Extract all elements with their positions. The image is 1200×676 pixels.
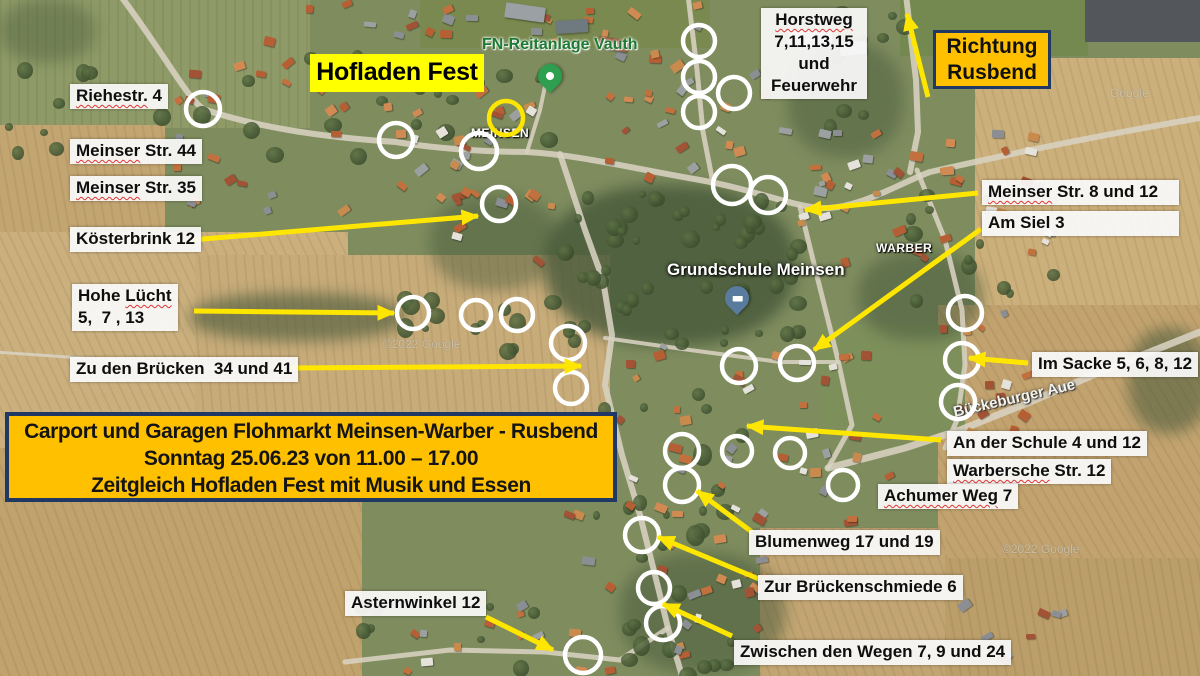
house [605,157,614,165]
house [632,374,640,382]
house [720,101,732,112]
street-label-zur-brueckenschmiede: Zur Brückenschmiede 6 [758,575,963,600]
house [810,164,821,170]
street-label-koesterbrink-12: Kösterbrink 12 [70,227,201,252]
tree [743,214,762,230]
house [516,630,525,639]
street-label-line: Feuerwehr [767,75,861,97]
label-text: Str. 12 [1050,461,1106,480]
meinsen-place: MEINSEN [471,126,529,140]
label-text: Str. 8 und 12 [1052,182,1158,201]
house [509,108,524,122]
tree [1047,269,1060,281]
house [674,405,681,412]
house [675,141,689,154]
sale-location-circle [625,518,659,552]
tree [888,12,897,21]
house [547,203,555,211]
house [772,351,785,361]
tree [266,147,284,162]
house [621,127,630,136]
tree [627,619,641,631]
tree [780,326,795,342]
tree [446,95,458,105]
tree [776,201,787,212]
house [384,102,393,111]
house [667,540,677,550]
street-label-line: Blumenweg 17 und 19 [755,531,934,553]
house [821,375,830,385]
street-label-achumer-weg-7: Achumer Weg 7 [878,484,1018,509]
street-label-im-sacke: Im Sacke 5, 6, 8, 12 [1032,352,1198,377]
label-text: Asternwinkel 12 [351,593,480,612]
tree [640,403,648,412]
sale-location-circle [683,96,715,128]
misspell-squiggle-text: Lücht [125,286,171,305]
tree [858,110,870,120]
event-extra-line: Zeitgleich Hofladen Fest mit Musik und E… [9,472,613,499]
house [643,172,655,184]
house [678,453,692,464]
label-text: Str. 44 [140,141,196,160]
house [653,350,666,361]
house [847,159,861,170]
street-label-line: Hohe Lücht [78,285,172,307]
house [852,452,862,462]
tree [17,62,33,79]
label-text: Blumenweg 17 und 19 [755,532,934,551]
tree [636,553,648,563]
house [799,467,807,475]
fn-reitanlage-vauth: FN-Reitanlage Vauth [482,36,638,54]
house [440,29,452,37]
tree [563,326,575,338]
label-text: und [798,54,829,73]
map-pin-dot [544,70,555,81]
label-text: Am Siel 3 [988,213,1065,232]
tree [919,189,935,202]
house [713,534,726,543]
misspell-squiggle-text: Meinser [988,182,1052,201]
label-text: Kösterbrink 12 [76,229,195,248]
street-label-line: Im Sacke 5, 6, 8, 12 [1038,353,1192,375]
street-label-line: Achumer Weg 7 [884,485,1012,507]
house [940,325,946,333]
tree [755,330,762,336]
house [687,161,700,173]
road [345,628,668,662]
tree [513,660,529,676]
tree [925,206,934,214]
street-label-meinser-str-44: Meinser Str. 44 [70,139,202,164]
house [798,219,806,227]
house [677,467,685,474]
house [1028,132,1040,142]
house [799,402,807,408]
house [809,468,820,477]
house [715,126,726,136]
street-label-line: Riehestr. 4 [76,85,162,107]
house [664,107,675,114]
tree [836,104,852,118]
house [909,151,923,162]
street-label-line: 5, 7 , 13 [78,307,172,329]
tree [789,296,807,311]
street-label-zwischen-den-wegen: Zwischen den Wegen 7, 9 und 24 [734,640,1011,665]
house [742,384,755,395]
tree [242,75,254,87]
house [459,151,471,160]
tree [997,281,1012,295]
house [173,164,181,171]
house [484,617,496,628]
tree [601,265,611,276]
tree [544,295,561,310]
tree [586,270,602,286]
misspell-squiggle-text: Meinser [76,141,140,160]
misspell-squiggle-text: Riehestr. [76,86,148,105]
event-date-line: Sonntag 25.06.23 von 11.00 – 17.00 [9,445,613,472]
flea-market-map-flyer: FN-Reitanlage VauthMEINSENWARBERGrundsch… [0,0,1200,676]
house [680,415,692,426]
street-label-line: Zwischen den Wegen 7, 9 und 24 [740,641,1005,663]
house [405,20,418,30]
tree [411,119,422,130]
street-label-riehestr: Riehestr. 4 [70,84,168,109]
house [839,203,850,213]
house [237,180,248,187]
label-text: Zu den Brücken 34 und 41 [76,359,292,378]
map-field [1085,0,1200,42]
street-label-line: und [767,53,861,75]
label-text: Hohe [78,286,125,305]
tree [904,226,922,242]
house [341,0,353,9]
house [419,630,427,638]
house [337,204,351,217]
tree [693,444,712,466]
house [263,36,276,47]
house [324,104,338,117]
arrow-meinser-8-12 [805,193,978,210]
watermark-2: Google [1110,86,1149,100]
tree [423,292,440,310]
tree [53,98,65,108]
farm-building [556,19,589,34]
tree [699,506,707,516]
street-label-line: Kösterbrink 12 [76,228,195,250]
tree [910,294,923,307]
house [726,443,737,455]
graduation-cap-icon [733,296,743,302]
house [628,474,638,482]
tree [243,122,260,139]
house [863,154,874,163]
house [420,657,432,666]
street-label-warbersche-str-12: Warbersche Str. 12 [947,459,1111,484]
street-label-line: Meinser Str. 35 [76,177,196,199]
house [604,581,616,593]
house [396,130,406,139]
watermark-1: ©2022 Google [383,337,461,351]
tree [681,230,700,248]
label-text: Zur Brückenschmiede 6 [764,577,957,596]
house [466,15,478,21]
map-field [820,325,965,433]
house [575,666,587,674]
misspell-squiggle-text: Warbersche [953,461,1050,480]
fn-reitanlage-pin [533,59,567,93]
tree [356,623,370,638]
house [1027,248,1036,255]
house [526,105,537,116]
house [411,135,419,144]
richtung-line: Richtung [936,34,1048,60]
street-label-line: Horstweg [767,9,861,31]
event-title-line: Carport und Garagen Flohmarkt Meinsen-Wa… [9,418,613,445]
house [844,182,853,190]
house [393,31,404,39]
tree [593,511,600,519]
house [516,600,528,612]
house [656,118,668,128]
house [569,629,582,638]
house [651,49,661,59]
tree [496,69,513,84]
street-label-line: Zur Brückenschmiede 6 [764,576,957,598]
street-label-line: Meinser Str. 8 und 12 [988,181,1173,203]
tree [701,404,712,414]
rusbend-line: Rusbend [936,60,1048,86]
label-text: Feuerwehr [771,76,857,95]
house [532,631,544,642]
sale-location-circle [379,123,413,157]
tree [976,239,985,249]
house [364,22,377,28]
tree [700,280,713,294]
house [670,59,685,74]
tree [402,297,420,315]
house [306,5,314,13]
house [396,180,408,191]
house [623,97,632,103]
tree [528,607,540,619]
grundschule-meinsen: Grundschule Meinsen [667,260,845,280]
house [582,557,596,566]
tree [697,660,712,674]
house [991,130,1004,138]
tree [622,304,632,315]
tree [671,585,687,603]
street-label-line: 7,11,13,15 [767,31,861,53]
street-label-am-siel-3: Am Siel 3 [982,211,1179,236]
tree [574,214,581,222]
tree [692,388,705,401]
street-label-meinser-str-35: Meinser Str. 35 [70,176,202,201]
tree [621,653,638,667]
sale-location-circle [828,470,858,500]
map-forest [1128,328,1200,433]
tree [477,636,485,643]
house [885,471,896,481]
tree [499,343,517,360]
house [873,191,880,197]
house [985,381,994,390]
tree [675,337,690,351]
street-label-line: Asternwinkel 12 [351,592,480,614]
hofladen-fest-banner: Hofladen Fest [310,54,484,92]
tree [639,191,646,198]
house [223,174,237,187]
tree [422,325,429,331]
street-label-zu-den-bruecken: Zu den Brücken 34 und 41 [70,357,298,382]
house [861,351,872,360]
map-forest [0,0,95,62]
tree [486,603,494,611]
street-label-meinser-str-8-12: Meinser Str. 8 und 12 [982,180,1179,205]
tree [686,525,705,546]
house [942,167,955,176]
street-label-line: Warbersche Str. 12 [953,460,1105,482]
tree [721,325,729,334]
tree [193,106,211,125]
house [626,360,636,368]
house [403,666,412,675]
house [963,328,971,334]
house [330,131,340,138]
house [669,443,683,453]
tree [735,428,749,443]
house [436,192,447,203]
street-label-blumenweg: Blumenweg 17 und 19 [749,530,940,555]
street-label-line: Am Siel 3 [988,212,1173,234]
house [805,428,818,439]
tree [906,213,916,225]
event-info-box: Carport und Garagen Flohmarkt Meinsen-Wa… [5,412,617,502]
house [847,516,857,522]
tree [712,224,719,231]
house [586,7,594,13]
tree [498,303,510,316]
tree [350,148,367,165]
house [833,130,843,136]
tree [582,191,594,204]
house [818,212,832,222]
street-label-horstweg: Horstweg7,11,13,15undFeuerwehr [761,8,867,99]
label-text: 7 [998,486,1012,505]
tree [964,255,973,265]
misspell-squiggle-text: Horstweg [775,10,852,29]
tree [428,308,445,325]
house [848,431,861,441]
house [749,69,761,80]
house [813,186,827,197]
house [207,153,221,163]
label-text: 5, 7 , 13 [78,308,144,327]
tree [620,206,639,223]
tree [540,132,558,148]
map-forest [190,293,405,341]
label-text: 7,11,13,15 [774,32,853,51]
tree [49,142,64,156]
house [940,233,953,243]
satellite-map: FN-Reitanlage VauthMEINSENWARBERGrundsch… [0,0,1200,676]
sale-location-circle [683,61,715,93]
house [408,9,418,19]
street-label-line: Meinser Str. 44 [76,140,196,162]
house [267,191,277,199]
house [189,70,201,79]
house [414,163,429,177]
tree [509,313,526,333]
house [946,138,955,146]
map-forest [430,195,560,290]
house [732,374,747,387]
house [799,360,811,366]
street-label-asternwinkel-12: Asternwinkel 12 [345,591,486,616]
label-text: An der Schule 4 und 12 [953,433,1141,452]
tree [12,146,24,159]
house [822,449,831,459]
tree [397,318,414,338]
warber-place: WARBER [876,241,932,255]
house [778,453,789,462]
house [779,127,793,135]
label-text: Str. 35 [140,178,196,197]
street-label-line: An der Schule 4 und 12 [953,432,1141,454]
street-label-hohe-luecht: Hohe Lücht5, 7 , 13 [72,284,178,331]
tree [679,206,690,218]
label-text: 4 [148,86,162,105]
house [412,109,423,119]
misspell-squiggle-text: Achumer Weg [884,486,998,505]
house [606,92,616,102]
house [454,643,461,652]
house [733,145,746,156]
tree [641,282,654,295]
house [338,102,349,113]
house [604,667,615,676]
richtung-rusbend-box: Richtung Rusbend [933,30,1051,89]
house [672,511,683,517]
misspell-squiggle-text: Meinser [76,178,140,197]
tree [633,495,647,510]
house [263,206,272,215]
tree [720,339,728,347]
house [531,28,542,35]
house [819,485,830,496]
tree [754,193,769,210]
house [517,610,525,618]
street-label-an-der-schule: An der Schule 4 und 12 [947,431,1147,456]
house [724,456,733,464]
tree [877,33,890,44]
watermark-3: ©2022 Google [1002,542,1080,556]
label-text: Im Sacke 5, 6, 8, 12 [1038,354,1192,373]
label-text: Zwischen den Wegen 7, 9 und 24 [740,642,1005,661]
street-label-line: Zu den Brücken 34 und 41 [76,358,292,380]
